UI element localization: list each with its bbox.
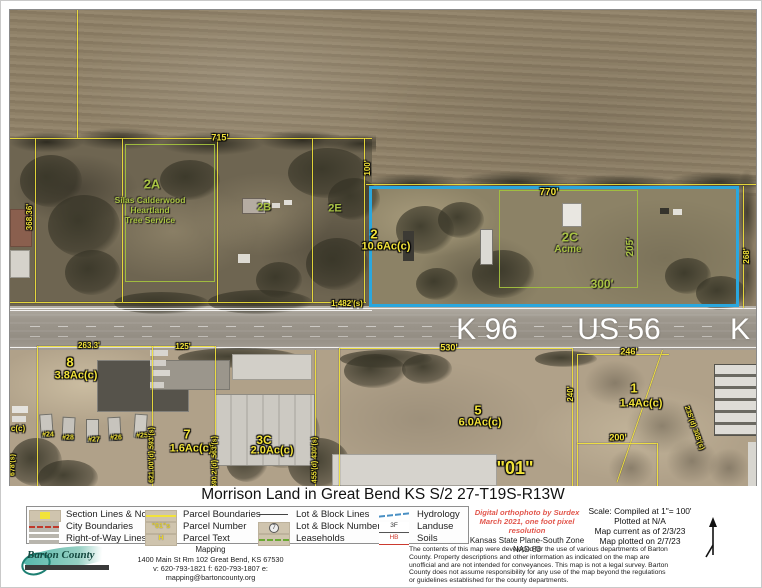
dept-name: Mapping [113,545,308,555]
parcel-2c-id: 2C [562,231,579,244]
dim-1482-label: 1,482'(s) [331,300,363,308]
building [232,354,312,380]
commercial-building [714,364,757,436]
dim-621-label: 621.00'(d) 593'(s) [149,427,156,483]
dim-246-label: 246' [620,348,637,357]
row-lines-swatch [29,534,59,544]
edge-ac-label: c(c) [11,425,25,433]
dim-263-label: 263.3' [78,342,100,350]
parcel-2-area: 10.6Ac(c) [362,242,411,253]
parcel-2a-text-3: Tree Service [125,216,175,225]
ortho-credit-2: March 2021, one foot pixel resolution [469,517,585,535]
parcel-3c-area: 2.0Ac(c) [251,446,294,457]
parcel-7-id: 7 [183,428,190,441]
dim-200-label: 200' [609,434,626,443]
parcel-line [339,348,340,487]
dim-300-label: 300' [591,278,614,290]
title-strip: Morrison Land in Great Bend KS S/2 27-T1… [9,486,757,506]
trailer-25-label: #25 [136,433,148,440]
section-line [77,10,78,138]
disclaimer-text: The contents of this map were developed … [409,546,672,585]
parcel-line [217,138,218,302]
aerial-map: 715' 368.36' 2A Silas Calderwood Heartla… [9,9,757,487]
dept-address: 1400 Main St Rm 102 Great Bend, KS 67530 [113,555,308,564]
bare-tree-blob [708,448,750,487]
lot-block-numbers-swatch: 7 [258,522,290,534]
parcel-2c-name: Acme [554,245,581,255]
parcel-line [10,302,366,303]
tree-blob [402,354,452,384]
bare-tree-blob [608,448,654,487]
parcel-2e-id: 2E [328,204,341,215]
dim-590-label: 590.2'(d) 563'(s) [212,436,219,487]
tree-blob [65,250,120,295]
legend-section-lines: Section Lines & No. [66,509,149,520]
vehicle [284,200,292,205]
parcel-number-swatch: "01"s [145,522,177,534]
lot-block-lines-swatch [258,510,288,520]
trailer-28-label: #28 [62,435,74,442]
vehicle [12,416,26,422]
parcel-8-area: 3.8Ac(c) [55,371,98,382]
trailer-26-label: #26 [110,435,122,442]
parcel-line [122,138,123,302]
north-arrow-icon [701,515,723,561]
legend-lot-block-lines: Lot & Block Lines [296,509,369,520]
parcel-line [37,346,38,487]
dim-715-label: 715' [211,134,228,143]
legend-soils: Soils [417,533,438,544]
parcel-boundaries-swatch [145,510,177,522]
parcel-8-id: 8 [66,356,73,369]
city-boundaries-swatch [29,522,59,532]
row-line-north [10,308,757,309]
parcel-line [35,138,36,302]
highway-k96-label: K 96 [456,315,518,345]
tree-blob [344,354,406,388]
legend-row-lines: Right-of-Way Lines [66,533,146,544]
dim-100-label: 100' [364,160,372,175]
parcel-line [577,354,578,487]
block-01-label: "01" [496,459,533,477]
parcel-line [572,348,573,487]
parcel-1-area: 1.4Ac(c) [620,399,663,410]
shed [238,254,250,263]
parcel-2a-id: 2A [144,178,161,191]
mapping-contact-block: Mapping 1400 Main St Rm 102 Great Bend, … [113,545,308,582]
parcel-2b-id: 2B [257,203,271,214]
dim-770-label: 770' [539,188,558,198]
logo-tagline-bar [25,565,109,570]
map-title: Morrison Land in Great Bend KS S/2 27-T1… [9,486,757,504]
legend-parcel-boundaries: Parcel Boundaries [183,509,261,520]
tree-blob [306,238,368,290]
legend-landuse: Landuse [417,521,453,532]
logo-text: Barton County [27,549,123,561]
parcel-2-id: 2 [370,228,377,241]
trailer-24-label: #24 [42,432,54,439]
parcel-1-id: 1 [630,382,637,395]
parcel-line [657,443,658,487]
legend-city-boundaries: City Boundaries [66,521,133,532]
highway-us56-label: US 56 [577,315,660,345]
legend-hydrology: Hydrology [417,509,460,520]
parcel-5-area: 6.0Ac(c) [459,418,502,429]
dim-530-label: 530' [440,344,457,353]
tree-blob [48,195,120,257]
hydrology-swatch [379,510,409,520]
legend-lot-block-numbers: Lot & Block Numbers [296,521,385,532]
dim-455-label: 455'(d) 430'(s) [312,437,319,483]
parcel-2a-text-2: Heartland [130,206,169,215]
parcel-line [312,138,313,302]
dim-268-label: 268' [743,248,751,263]
dim-368-label: 368.36' [26,204,34,230]
vehicle [12,406,28,413]
building [10,250,30,278]
building [748,442,757,486]
barton-county-logo: Barton County [21,545,121,578]
legend: Section Lines & No. City Boundaries Righ… [26,506,469,544]
parcel-7-area: 1.6Ac(c) [170,444,213,455]
section-lines-swatch [29,510,61,522]
trailer-27-label: #27 [88,437,100,444]
dept-contact: v: 620-793-1821 f: 620-793-1807 e: mappi… [113,564,308,582]
parcel-2a-text-1: Silas Calderwood [115,196,186,205]
parcel-line [743,186,744,308]
vehicle [272,203,280,208]
dim-205-label: 205' [626,237,636,256]
parcel-5-id: 5 [474,404,481,417]
vehicle-row [152,370,170,376]
row-line [10,310,372,311]
legend-leaseholds: Leaseholds [296,533,345,544]
ortho-credit-1: Digital orthophoto by Surdex [469,508,585,517]
soils-swatch: HB [379,534,409,545]
legend-parcel-text: Parcel Text [183,533,230,544]
dim-678-label: 678'(s) [10,454,17,476]
map-sheet: 715' 368.36' 2A Silas Calderwood Heartla… [0,0,762,588]
parcel-line [10,138,372,139]
highway-k-label: K [730,315,750,345]
dim-125-label: 125' [175,343,190,351]
dim-240-label: 240' [567,386,575,401]
parcel-line [366,184,757,185]
projection-1: Kansas State Plane-South Zone [469,536,585,545]
building [332,454,497,486]
legend-parcel-number: Parcel Number [183,521,246,532]
scale-block: Scale: Compiled at 1"= 100' Plotted at N… [583,507,697,547]
parcel-line [577,443,657,444]
landuse-swatch: 3F [379,522,409,533]
